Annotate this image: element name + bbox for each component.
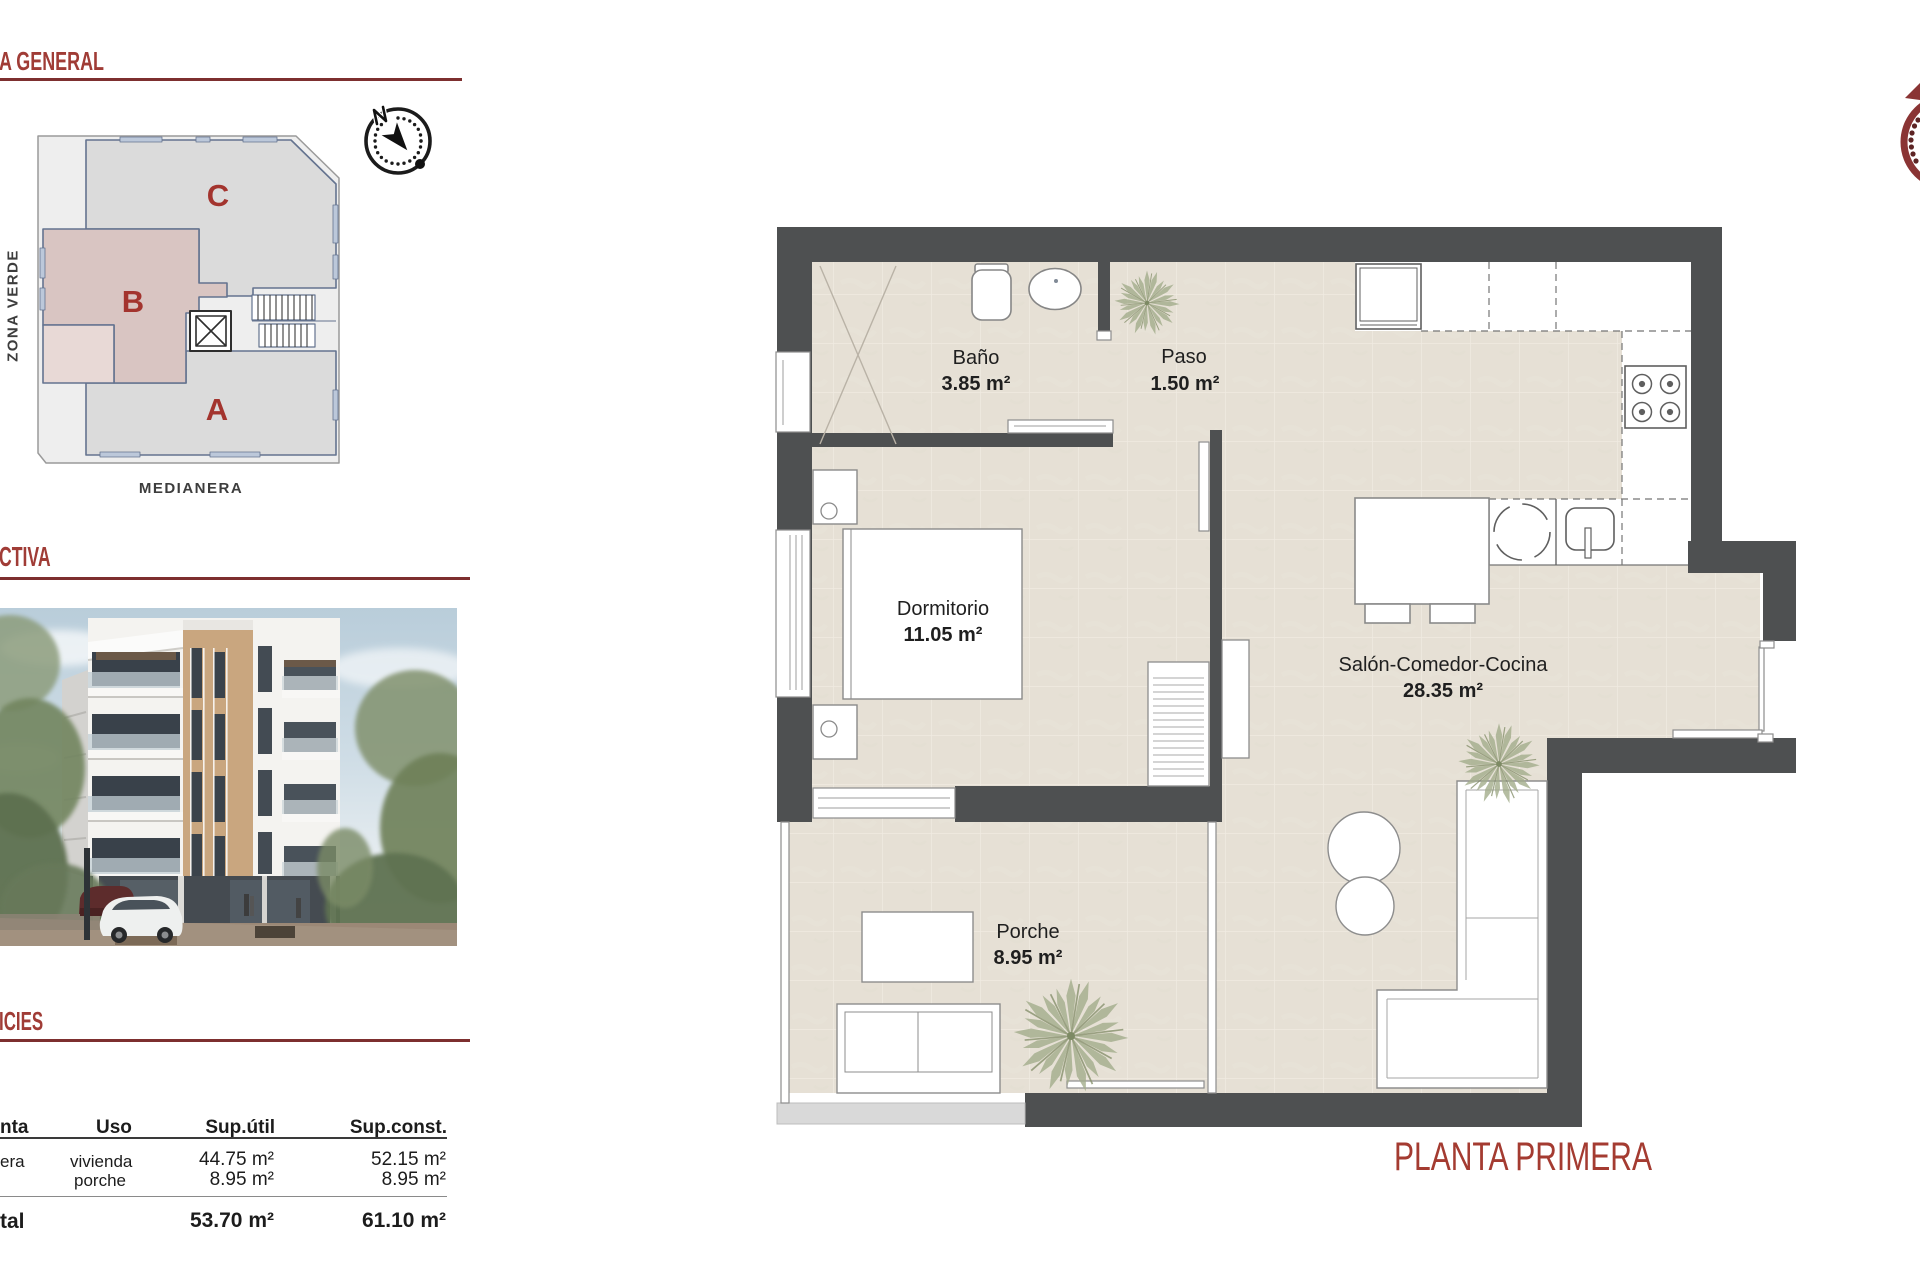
svg-text:3.85 m²: 3.85 m² bbox=[942, 373, 1011, 395]
svg-text:B: B bbox=[122, 284, 144, 319]
svg-text:Porche: Porche bbox=[996, 921, 1059, 943]
svg-text:Dormitorio: Dormitorio bbox=[897, 598, 989, 620]
svg-text:Salón-Comedor-Cocina: Salón-Comedor-Cocina bbox=[1339, 654, 1549, 676]
svg-text:11.05 m²: 11.05 m² bbox=[904, 624, 983, 646]
svg-text:Baño: Baño bbox=[953, 347, 1000, 369]
svg-text:PLANTA PRIMERA: PLANTA PRIMERA bbox=[1394, 1135, 1652, 1179]
svg-text:Paso: Paso bbox=[1161, 346, 1207, 368]
svg-text:28.35 m²: 28.35 m² bbox=[1403, 680, 1483, 702]
svg-text:1.50 m²: 1.50 m² bbox=[1151, 373, 1220, 395]
svg-text:A: A bbox=[206, 392, 228, 427]
svg-text:C: C bbox=[207, 178, 229, 213]
svg-text:8.95 m²: 8.95 m² bbox=[994, 947, 1063, 969]
